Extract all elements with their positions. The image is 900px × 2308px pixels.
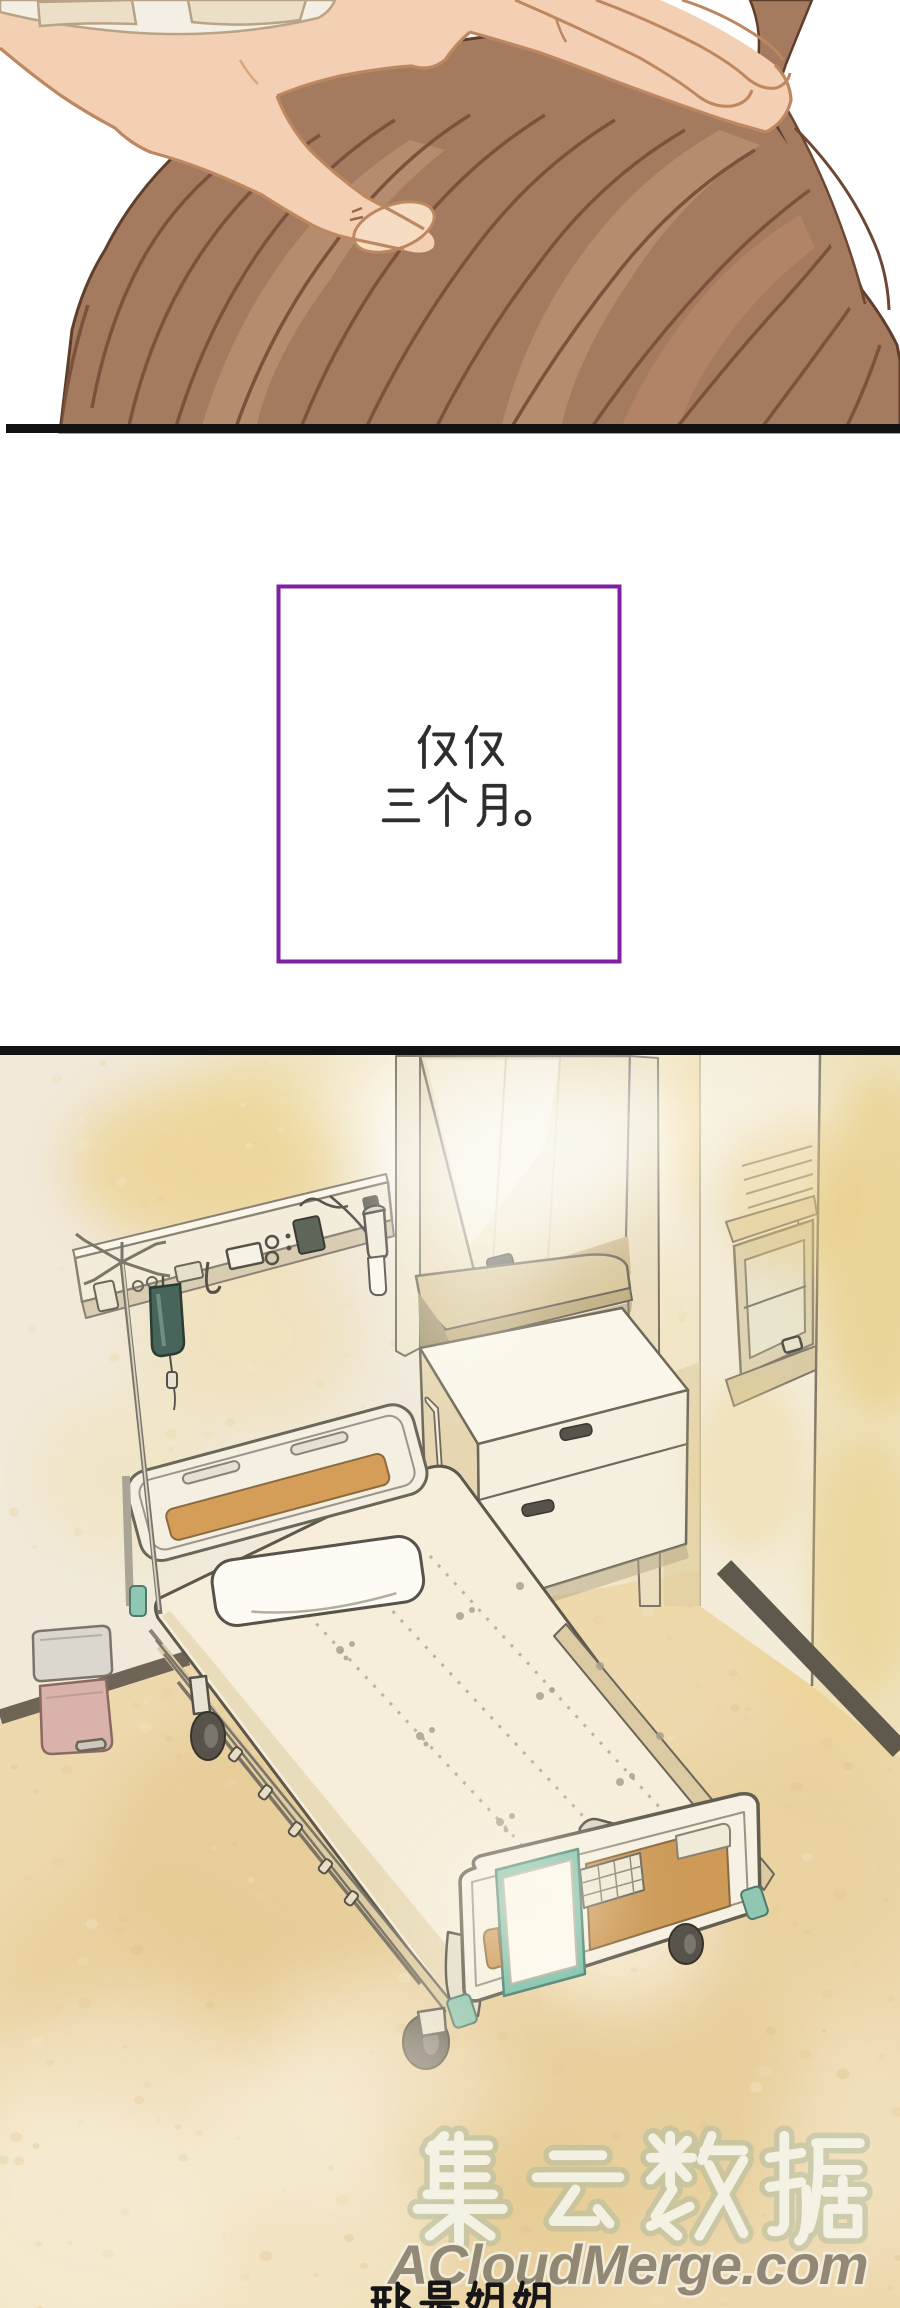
svg-text:ACloudMerge.com: ACloudMerge.com [386,2233,868,2296]
